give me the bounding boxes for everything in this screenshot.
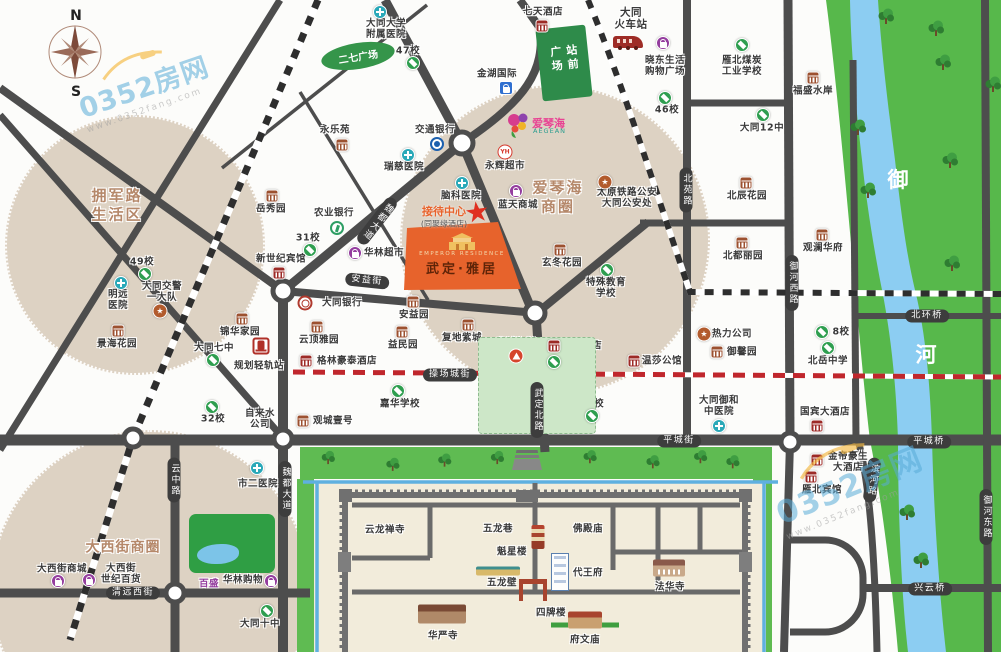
res-yuexiu-icon [266, 190, 279, 203]
aegean-flower-icon [506, 113, 530, 139]
road-pill-wuding-north-road: 武定北路 [531, 382, 544, 438]
res-beichen-icon [740, 177, 753, 190]
road-pill-caochangcheng-street: 操场城街 [423, 369, 477, 382]
aegean-logo: 爱琴海 AEGEAN [506, 113, 530, 143]
school-8-icon [815, 325, 829, 339]
res-yongle-icon [336, 139, 349, 152]
school-32-icon [205, 400, 219, 414]
road-pill-xingyun-bridge: 兴云桥 [908, 583, 952, 596]
hotel-yanbei-icon [805, 471, 818, 484]
road-pill-pingcheng-street: 平城街 [657, 435, 701, 448]
school-sizhong-icon [547, 355, 561, 369]
school-datong-10-icon [260, 604, 274, 618]
road-pill-beihuan-bridge: 北环桥 [905, 310, 949, 323]
res-jinhua-icon [236, 313, 249, 326]
reception-hotel-label: (同聚缘酒店) [421, 219, 467, 230]
project-logo: EMPEROR RESIDENCE 武定·雅居 [402, 233, 522, 277]
res-yimin-icon [396, 326, 409, 339]
res-fusheng-icon [807, 72, 820, 85]
mall-jinhu-icon [499, 81, 513, 95]
school-jiahua-icon [391, 384, 405, 398]
datong-park-zone [189, 514, 275, 573]
school-beiyue-icon [821, 341, 835, 355]
station-square-label: 站前广场 [546, 43, 582, 82]
road-pill-yuhe-west-road: 御河西路 [786, 255, 799, 311]
oldtown-gate-silhouette [512, 450, 542, 470]
market-yonghui-icon: YH [498, 145, 513, 160]
project-logo-en: EMPEROR RESIDENCE [402, 251, 522, 257]
school-47-icon [406, 56, 420, 70]
bank-jiaotong-icon [430, 137, 444, 151]
mall-lantian-icon [509, 184, 523, 198]
hotel-jindi-icon [811, 454, 824, 467]
bank-datong-icon [298, 296, 313, 311]
res-yunding-icon [311, 321, 324, 334]
res-beidu-icon [736, 237, 749, 250]
hotel-guobin-icon [811, 420, 824, 433]
hospital-naoke-icon [455, 176, 469, 190]
oldtown-north-gate [516, 490, 538, 502]
oldtown-wulongbi-icon [476, 567, 520, 576]
school-46-icon [658, 91, 672, 105]
school-special-edu-icon [600, 263, 614, 277]
interchange-loop [790, 540, 863, 632]
school-yanbei-coal-icon [735, 38, 749, 52]
oldtown-kuixing-tower-icon [532, 525, 545, 549]
school-datong-7-icon [206, 353, 220, 367]
mall-daxijie-icon [51, 574, 65, 588]
school-31-icon [303, 243, 317, 257]
map-graphics [0, 0, 1001, 652]
compass: N S [46, 10, 106, 96]
hotel-greentree-icon [300, 355, 313, 368]
school-19-icon [585, 409, 599, 423]
hospital-ruici-icon [401, 148, 415, 162]
hotel-7days-icon [536, 20, 549, 33]
oldtown-sipailou-icon [519, 579, 547, 601]
food-lucheng-icon [509, 349, 524, 364]
res-guancheng-icon [297, 415, 310, 428]
road-pill-pingcheng-bridge: 平城桥 [907, 436, 951, 449]
hospital-mingyuan-icon [114, 276, 128, 290]
road-pill-yunzhong-road: 云中路 [168, 458, 181, 503]
oldtown-huayan-temple-icon [418, 605, 466, 624]
hospital-univ-affiliated-icon [373, 5, 387, 19]
station-lightrail-icon [253, 338, 270, 355]
school-49-icon [138, 267, 152, 281]
oldtown-fahua-temple-icon [653, 560, 685, 577]
aegean-en-label: AEGEAN [533, 127, 566, 135]
oldtown-fuwenmiao-icon [568, 612, 602, 629]
res-anyi-icon [407, 296, 420, 309]
res-fudi-icon [462, 319, 475, 332]
station-railway-icon [613, 36, 643, 48]
reception-center-label: 接待中心 [422, 203, 466, 219]
res-windsor-icon [628, 355, 641, 368]
police-jiaojing-icon [153, 304, 168, 319]
res-yuxin-icon [711, 346, 724, 359]
hotel-yuelong-icon [548, 340, 561, 353]
res-xuandong-icon [554, 244, 567, 257]
res-jinghai-icon [112, 325, 125, 338]
compass-south-label: S [71, 84, 81, 100]
mall-hualin-shopping-icon [264, 574, 278, 588]
hospital-shier-icon [250, 461, 264, 475]
road-pill-yuhe-east-road: 御河东路 [980, 489, 993, 545]
hospital-yuhe-tcm-icon [712, 419, 726, 433]
project-gate-icon [447, 233, 477, 250]
project-logo-cn: 武定·雅居 [402, 258, 522, 277]
road-pill-weidu-avenue: 魏都大道 [279, 461, 292, 517]
oldtown-east-gate [739, 552, 752, 572]
erqi-square-label: 二七广场 [337, 45, 379, 66]
mall-xiaodong-icon [656, 36, 670, 50]
road-pill-qingyuan-west-street: 清远西街 [106, 587, 160, 600]
bank-nongye-icon [330, 221, 344, 235]
oldtown-daiwangfu-icon [551, 553, 569, 591]
hotel-new-century-icon [273, 267, 286, 280]
road-pill-beiyuan-road: 北苑路 [680, 168, 693, 213]
map-canvas: 站前广场 二七广场 [0, 0, 1001, 652]
market-hualin-icon [348, 246, 362, 260]
station-square-zone: 站前广场 [535, 25, 592, 102]
oldtown-west-gate [338, 552, 351, 572]
park-pond [197, 544, 239, 564]
school-datong-12-icon [756, 108, 770, 122]
res-guanlan-icon [816, 229, 829, 242]
mall-shiji-icon [82, 573, 96, 587]
compass-north-label: N [70, 8, 82, 24]
utility-reli-icon [697, 327, 712, 342]
police-railway-icon [598, 175, 613, 190]
